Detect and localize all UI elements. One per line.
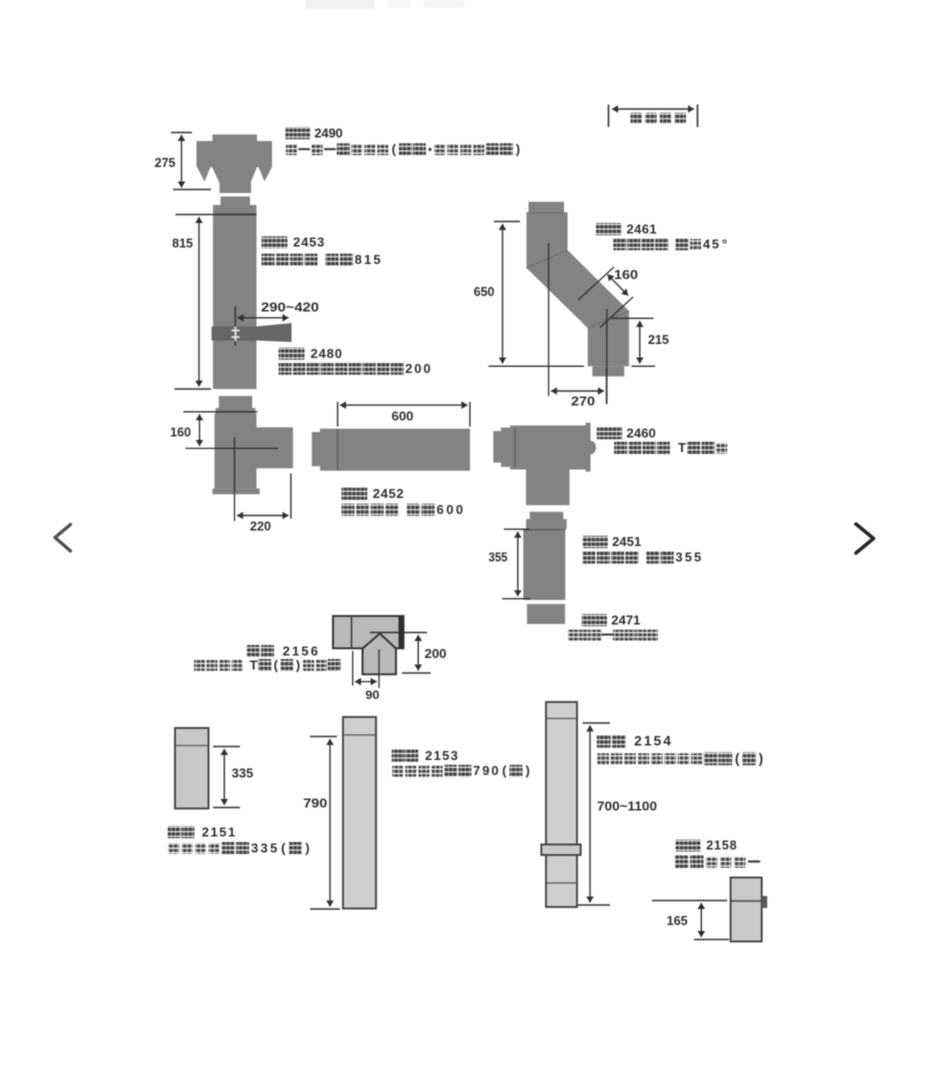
svg-text:1: 1: [644, 734, 652, 749]
svg-text:(: (: [281, 840, 286, 855]
svg-text:4: 4: [381, 486, 389, 501]
svg-text:): ): [516, 142, 520, 157]
svg-text:2: 2: [373, 486, 380, 501]
svg-text:T: T: [678, 440, 686, 455]
svg-text:6: 6: [642, 221, 649, 236]
svg-text:335: 335: [232, 767, 254, 781]
svg-text:220: 220: [250, 520, 271, 534]
svg-text:6: 6: [641, 425, 648, 440]
svg-text:0: 0: [414, 361, 421, 376]
svg-text:90: 90: [365, 690, 379, 702]
svg-text:2: 2: [396, 486, 403, 501]
svg-text:5: 5: [694, 550, 701, 565]
svg-text:6: 6: [311, 643, 318, 658]
svg-text:7: 7: [626, 612, 633, 627]
svg-text:2: 2: [405, 361, 412, 376]
svg-text:8: 8: [730, 839, 737, 853]
svg-text:1: 1: [714, 839, 721, 853]
svg-text:0: 0: [456, 502, 463, 517]
svg-text:270: 270: [571, 395, 595, 409]
svg-text:1: 1: [210, 824, 217, 839]
svg-text:2: 2: [293, 235, 300, 250]
svg-text:5: 5: [270, 840, 277, 855]
svg-text:0: 0: [336, 125, 343, 140]
svg-text:5: 5: [654, 734, 662, 749]
svg-text:2: 2: [634, 734, 642, 749]
svg-text:600: 600: [392, 410, 414, 424]
svg-text:): ): [759, 751, 764, 766]
svg-text:165: 165: [667, 914, 688, 928]
svg-text:5: 5: [442, 748, 449, 763]
svg-text:3: 3: [251, 840, 258, 855]
svg-text:5: 5: [309, 235, 316, 250]
svg-text:(: (: [735, 751, 740, 766]
svg-text:8: 8: [327, 346, 334, 361]
svg-text:5: 5: [685, 550, 692, 565]
svg-text:T: T: [250, 657, 258, 672]
svg-text:9: 9: [482, 763, 489, 778]
svg-text:5: 5: [373, 252, 380, 267]
svg-text:0: 0: [446, 502, 453, 517]
svg-text:2: 2: [425, 748, 432, 763]
svg-text:2: 2: [627, 221, 634, 236]
svg-text:): ): [305, 840, 309, 855]
svg-text:2: 2: [283, 643, 290, 658]
svg-text:2: 2: [310, 346, 317, 361]
svg-text:650: 650: [474, 285, 495, 299]
svg-text:5: 5: [627, 534, 634, 549]
svg-text:0: 0: [491, 763, 498, 778]
svg-text:4: 4: [301, 235, 309, 250]
svg-text:1: 1: [434, 748, 441, 763]
svg-text:(: (: [392, 142, 397, 157]
svg-text:2: 2: [706, 839, 713, 853]
svg-text:1: 1: [292, 643, 299, 658]
svg-text:2: 2: [202, 824, 209, 839]
svg-text:200: 200: [425, 647, 447, 661]
svg-text:3: 3: [451, 748, 458, 763]
svg-text:5: 5: [388, 486, 395, 501]
svg-text:1: 1: [649, 221, 656, 236]
svg-text:1: 1: [364, 252, 371, 267]
svg-text:215: 215: [648, 333, 669, 347]
svg-text:290~420: 290~420: [261, 301, 319, 315]
svg-text:1: 1: [228, 824, 235, 839]
svg-text:3: 3: [261, 840, 268, 855]
svg-text:): ): [296, 657, 300, 672]
svg-text:5: 5: [301, 643, 308, 658]
svg-text:275: 275: [155, 156, 176, 170]
svg-text:4: 4: [319, 346, 327, 361]
svg-text:160: 160: [614, 268, 638, 282]
svg-text:0: 0: [335, 346, 342, 361]
svg-text:790: 790: [303, 797, 327, 811]
svg-text:815: 815: [172, 237, 193, 251]
svg-text:5: 5: [712, 236, 719, 251]
svg-text:(: (: [502, 763, 507, 778]
svg-text:355: 355: [489, 551, 508, 565]
svg-text:1: 1: [634, 534, 641, 549]
svg-text:0: 0: [423, 361, 430, 376]
svg-text:2: 2: [611, 612, 618, 627]
svg-text:): ): [525, 763, 529, 778]
svg-text:700~1100: 700~1100: [597, 800, 657, 814]
svg-text:(: (: [274, 657, 279, 672]
svg-text:3: 3: [675, 550, 682, 565]
svg-text:2: 2: [612, 534, 619, 549]
svg-text:8: 8: [355, 252, 362, 267]
svg-text:5: 5: [219, 824, 226, 839]
svg-text:7: 7: [473, 763, 480, 778]
svg-text:0: 0: [649, 425, 656, 440]
svg-text:°: °: [722, 236, 727, 251]
svg-text:4: 4: [703, 236, 711, 251]
svg-text:160: 160: [170, 426, 191, 440]
svg-text:1: 1: [633, 612, 640, 627]
svg-text:4: 4: [663, 734, 671, 749]
svg-text:2: 2: [627, 425, 634, 440]
svg-text:3: 3: [317, 235, 324, 250]
svg-text:5: 5: [722, 839, 729, 853]
svg-text:6: 6: [437, 502, 444, 517]
